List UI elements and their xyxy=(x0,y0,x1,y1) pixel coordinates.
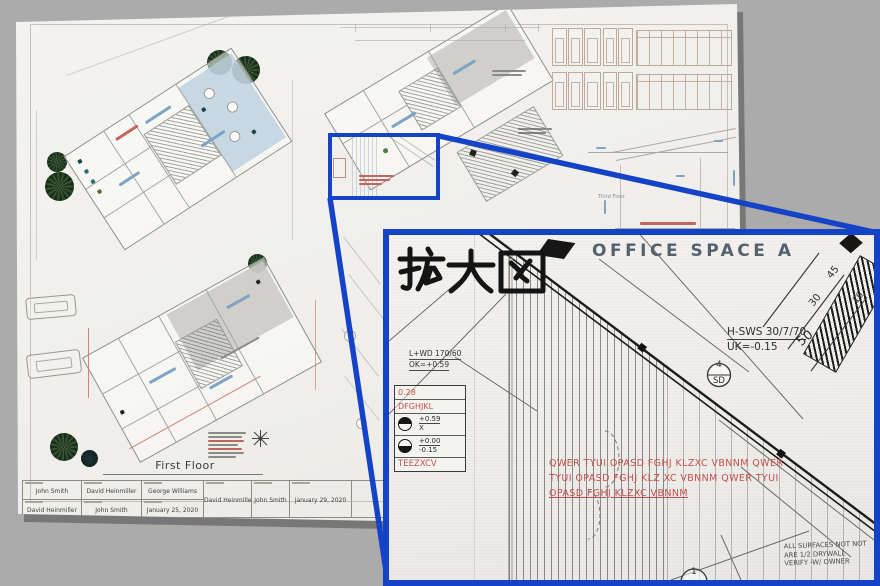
legend-symbol-row: +0.59X xyxy=(395,414,465,436)
lintel-tag: L+WD 170/60 OK=+0.59 xyxy=(409,349,461,371)
level-symbol-icon xyxy=(398,417,412,431)
callout-connector-line xyxy=(439,136,878,233)
detail-bubble-gw-number: 1 xyxy=(682,568,706,577)
level-symbol-icon xyxy=(398,439,412,453)
red-annotation: QWER TYUI OPASD FGHJ KLZXC VBNNM QWER TY… xyxy=(549,456,819,501)
room-label: OFFICE SPACE A xyxy=(592,241,794,261)
magnified-view-title: 拡大図 xyxy=(397,245,547,301)
finish-legend: 0.28 DFGHJKL +0.59X +0.00-0.15 TEEZXCV xyxy=(394,385,466,472)
magnified-inset: 拡大図 OFFICE SPACE A L+WD 170/60 OK=+0.59 … xyxy=(383,229,880,586)
legend-symbol-row: +0.00-0.15 xyxy=(395,436,465,458)
detail-bubble-sd-tag: SD xyxy=(707,377,731,386)
callout-connector-line xyxy=(330,198,388,584)
surface-note: ALL SURFACES NOT NOT ARE 1/2 DRYWALL VER… xyxy=(784,540,868,568)
legend-row: DFGHJKL xyxy=(395,400,465,414)
detail-bubble-sd-number: 4 xyxy=(707,361,731,370)
legend-row: 0.28 xyxy=(395,386,465,400)
photo-of-architectural-drawing: Third Floor First Floor John Smith xyxy=(0,0,880,586)
legend-row: TEEZXCV xyxy=(395,458,465,471)
